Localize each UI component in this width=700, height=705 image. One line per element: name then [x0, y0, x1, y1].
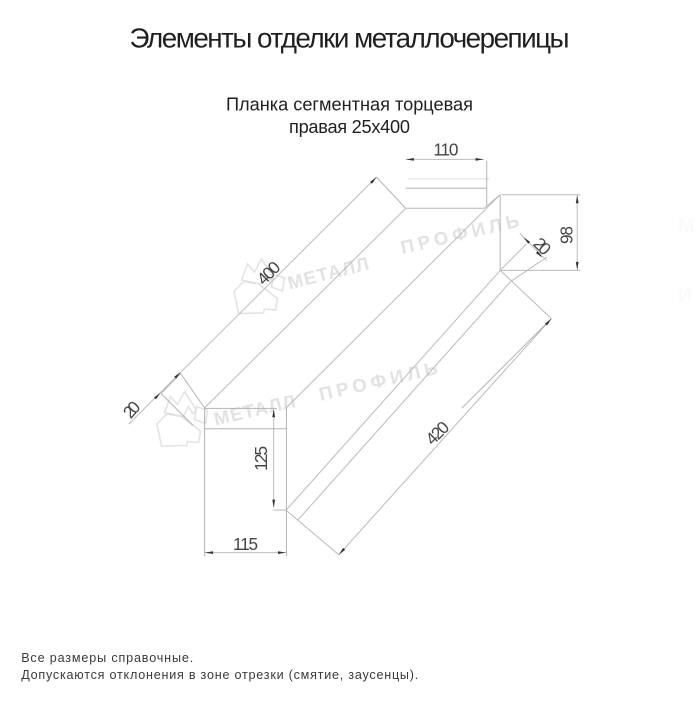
svg-text:98: 98 — [557, 226, 577, 244]
svg-text:Допускаются отклонения в зоне: Допускаются отклонения в зоне отрезки (с… — [21, 668, 418, 682]
svg-text:Все размеры справочные.: Все размеры справочные. — [21, 651, 193, 665]
svg-text:И: И — [678, 285, 692, 307]
svg-text:115: 115 — [233, 534, 258, 554]
svg-text:Элементы отделки металлочерепи: Элементы отделки металлочерепицы — [130, 22, 570, 53]
svg-text:правая 25х400: правая 25х400 — [289, 117, 410, 137]
svg-text:110: 110 — [433, 140, 458, 160]
svg-text:М: М — [678, 215, 695, 237]
svg-text:Планка сегментная торцевая: Планка сегментная торцевая — [226, 95, 473, 115]
svg-text:125: 125 — [251, 446, 271, 471]
